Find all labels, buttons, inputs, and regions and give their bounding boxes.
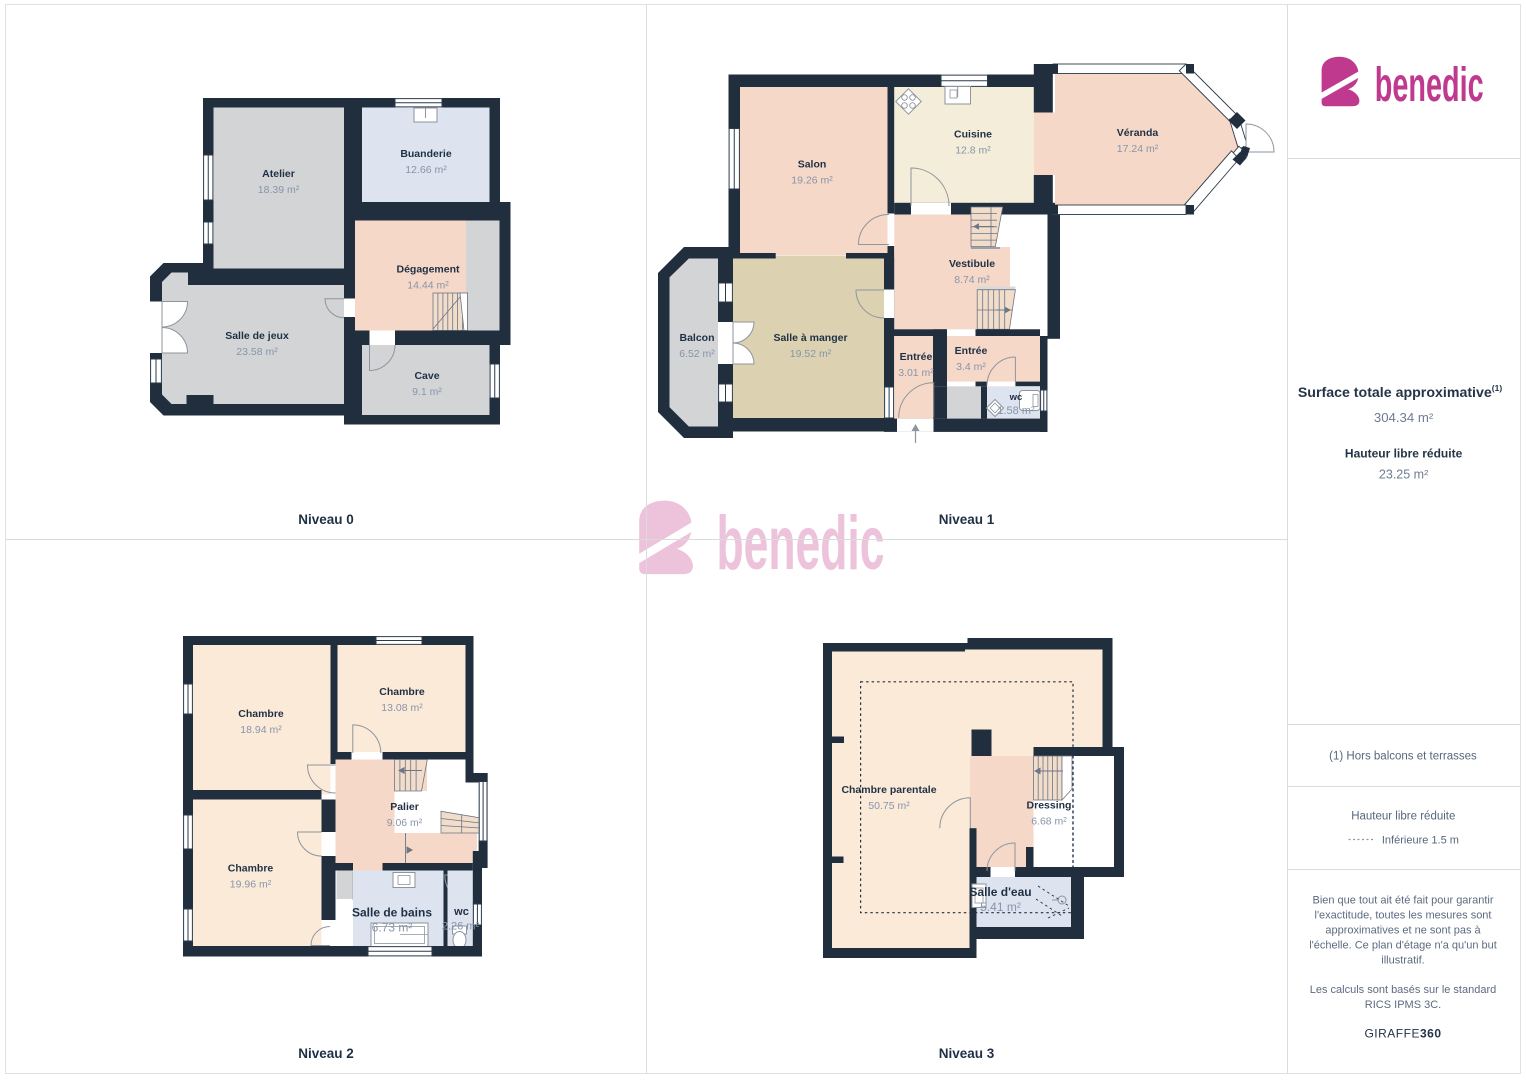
svg-text:Cuisine: Cuisine [954,129,992,141]
svg-text:Palier: Palier [390,801,419,813]
svg-text:19.26 m²: 19.26 m² [791,175,833,187]
svg-text:3.01 m²: 3.01 m² [898,367,934,379]
svg-text:Dégagement: Dégagement [396,264,460,276]
svg-text:Entrée: Entrée [955,345,988,357]
svg-text:l'exactitude, toutes les mesur: l'exactitude, toutes les mesures sont [1315,910,1492,922]
svg-text:Niveau 0: Niveau 0 [298,512,354,527]
svg-text:2.26 m²: 2.26 m² [442,921,480,933]
svg-text:19.52 m²: 19.52 m² [790,348,832,360]
svg-text:6.52 m²: 6.52 m² [679,348,715,360]
svg-text:wc: wc [453,906,469,918]
svg-text:Hauteur libre réduite: Hauteur libre réduite [1351,811,1455,823]
svg-text:approximatives et ne sont pas: approximatives et ne sont pas à [1325,925,1481,937]
svg-text:Niveau 3: Niveau 3 [939,1046,995,1061]
svg-text:Balcon: Balcon [679,332,714,344]
svg-text:Inférieure 1.5 m: Inférieure 1.5 m [1382,835,1459,847]
svg-text:GIRAFFE360: GIRAFFE360 [1364,1027,1441,1041]
svg-text:Entrée: Entrée [900,351,933,363]
svg-text:3.4 m²: 3.4 m² [956,361,986,373]
svg-text:Hauteur libre réduite: Hauteur libre réduite [1345,447,1463,461]
svg-text:Salle de jeux: Salle de jeux [225,330,289,342]
svg-text:Surface totale approximative(1: Surface totale approximative(1) [1298,383,1503,401]
svg-text:9.06 m²: 9.06 m² [387,817,423,829]
svg-text:9.1 m²: 9.1 m² [412,386,442,398]
svg-text:illustratif.: illustratif. [1381,955,1424,967]
svg-text:RICS IPMS 3C.: RICS IPMS 3C. [1365,999,1441,1011]
svg-text:13.08 m²: 13.08 m² [381,702,423,714]
svg-text:Niveau 2: Niveau 2 [298,1046,354,1061]
svg-text:Buanderie: Buanderie [400,148,452,160]
svg-text:Salle d'eau: Salle d'eau [969,885,1031,899]
svg-text:Chambre parentale: Chambre parentale [841,784,936,796]
svg-text:1.58 m²: 1.58 m² [997,405,1035,417]
svg-text:Salon: Salon [798,159,827,171]
svg-text:12.66 m²: 12.66 m² [405,164,447,176]
svg-text:Les calculs sont basés sur le: Les calculs sont basés sur le standard [1310,984,1497,996]
svg-text:6.68 m²: 6.68 m² [1031,816,1067,828]
svg-text:23.58 m²: 23.58 m² [236,346,278,358]
svg-text:Dressing: Dressing [1027,800,1072,812]
svg-text:Salle à manger: Salle à manger [773,332,847,344]
svg-text:6.73 m²: 6.73 m² [372,921,413,935]
svg-text:19.96 m²: 19.96 m² [230,879,272,891]
svg-text:5.41 m²: 5.41 m² [980,900,1021,914]
svg-text:17.24 m²: 17.24 m² [1117,143,1159,155]
svg-text:wc: wc [1009,392,1023,403]
svg-text:18.39 m²: 18.39 m² [258,184,300,196]
svg-text:benedic: benedic [717,502,885,586]
svg-text:Cave: Cave [414,370,439,382]
svg-text:Chambre: Chambre [238,708,284,720]
svg-text:50.75 m²: 50.75 m² [868,800,910,812]
svg-text:Atelier: Atelier [262,168,295,180]
svg-text:18.94 m²: 18.94 m² [240,724,282,736]
svg-text:Vestibule: Vestibule [949,258,995,270]
svg-text:Bien que tout ait été fait pou: Bien que tout ait été fait pour garantir [1312,895,1493,907]
svg-text:14.44 m²: 14.44 m² [407,280,449,292]
svg-text:l'échelle. Ce plan d'étage n'a: l'échelle. Ce plan d'étage n'a qu'un but [1309,940,1497,952]
svg-text:Salle de bains: Salle de bains [352,906,432,920]
svg-text:(1) Hors balcons et terrasses: (1) Hors balcons et terrasses [1329,751,1477,763]
svg-text:Véranda: Véranda [1117,127,1159,139]
svg-text:12.8 m²: 12.8 m² [955,145,991,157]
svg-text:benedic: benedic [1375,59,1484,112]
svg-text:23.25 m²: 23.25 m² [1379,468,1428,482]
svg-text:Niveau 1: Niveau 1 [939,512,995,527]
svg-text:Chambre: Chambre [379,686,425,698]
svg-text:8.74 m²: 8.74 m² [954,274,990,286]
svg-text:Chambre: Chambre [228,863,274,875]
svg-text:304.34 m²: 304.34 m² [1374,410,1434,425]
